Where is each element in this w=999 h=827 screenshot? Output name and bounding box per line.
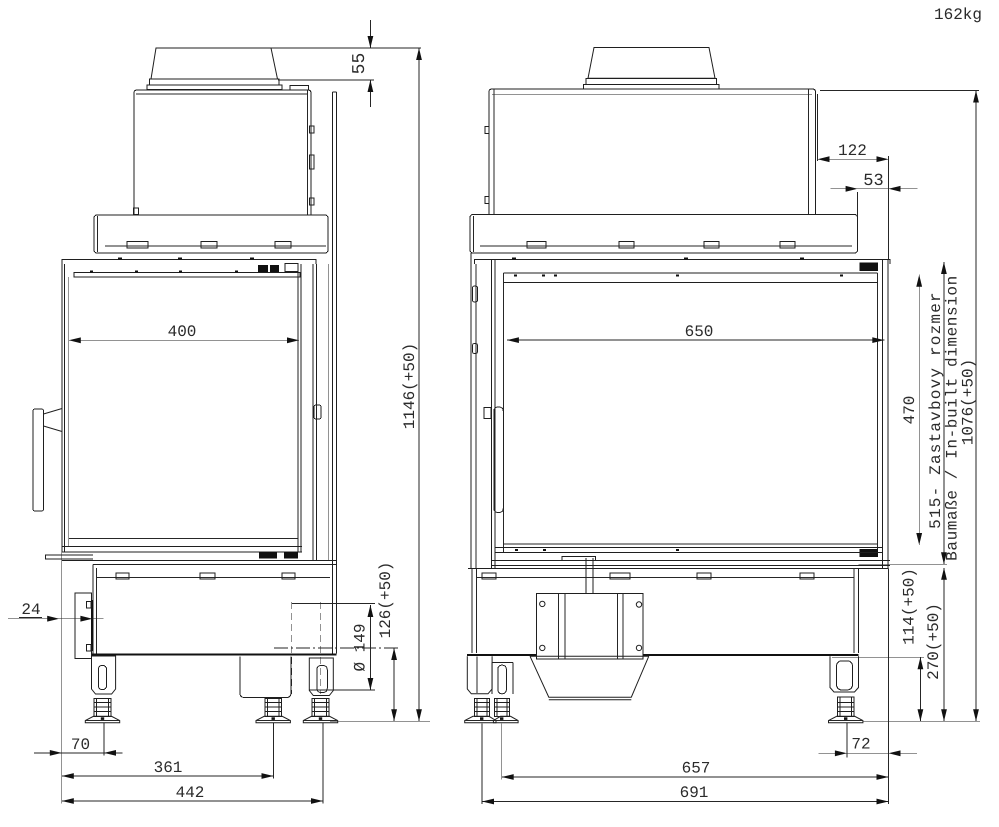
svg-text:442: 442 <box>176 784 205 802</box>
svg-text:24: 24 <box>21 601 40 619</box>
svg-text:400: 400 <box>168 323 197 341</box>
svg-text:126(+50): 126(+50) <box>377 562 395 639</box>
svg-text:Ø 149: Ø 149 <box>352 623 370 671</box>
svg-text:691: 691 <box>680 784 709 802</box>
svg-text:1146(+50): 1146(+50) <box>401 343 419 429</box>
svg-text:361: 361 <box>154 759 183 777</box>
svg-text:53: 53 <box>863 172 883 191</box>
svg-text:70: 70 <box>71 736 90 754</box>
svg-text:55: 55 <box>350 53 370 75</box>
svg-text:657: 657 <box>682 760 711 778</box>
svg-text:270(+50): 270(+50) <box>925 603 943 680</box>
svg-text:72: 72 <box>851 736 870 754</box>
svg-text:470: 470 <box>901 396 919 425</box>
svg-text:122: 122 <box>838 142 867 160</box>
svg-text:162kg: 162kg <box>934 6 982 24</box>
svg-text:650: 650 <box>685 323 714 341</box>
svg-text:515- Zastavbovy rozmer: 515- Zastavbovy rozmer <box>927 291 945 529</box>
svg-text:114(+50): 114(+50) <box>901 568 919 645</box>
svg-text:1076(+50): 1076(+50) <box>960 359 978 445</box>
